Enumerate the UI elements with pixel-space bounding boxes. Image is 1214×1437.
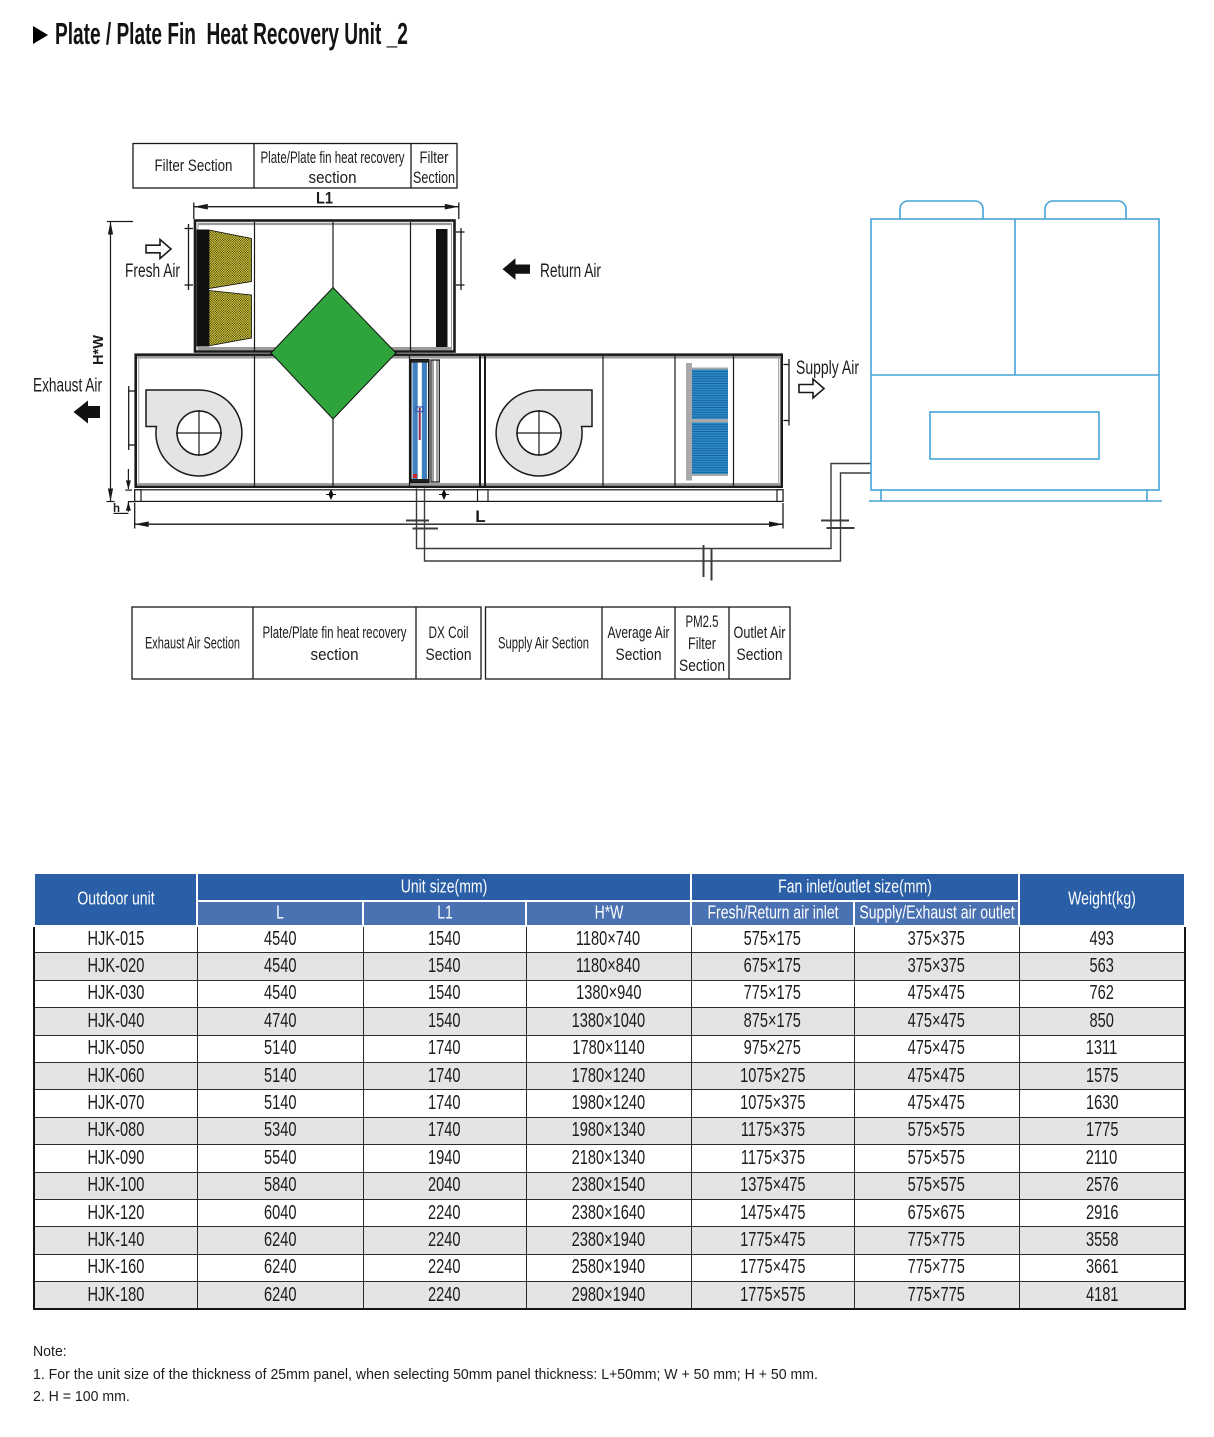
svg-text:PM2.5: PM2.5 xyxy=(686,613,719,631)
svg-text:section: section xyxy=(311,646,359,664)
svg-text:Plate/Plate fin heat recovery: Plate/Plate fin heat recovery xyxy=(261,149,406,167)
svg-text:section: section xyxy=(309,169,357,187)
svg-text:Filter: Filter xyxy=(420,149,449,167)
svg-text:Filter: Filter xyxy=(688,635,716,653)
svg-text:Supply Air Section: Supply Air Section xyxy=(498,635,589,653)
svg-text:L1: L1 xyxy=(316,189,333,208)
svg-text:Return Air: Return Air xyxy=(540,261,601,282)
svg-text:L: L xyxy=(475,507,485,526)
svg-text:Exhaust Air Section: Exhaust Air Section xyxy=(145,635,240,653)
svg-text:Supply Air: Supply Air xyxy=(796,358,859,379)
svg-text:Section: Section xyxy=(679,657,725,675)
svg-text:Fresh Air: Fresh Air xyxy=(125,261,180,282)
svg-text:Outlet Air: Outlet Air xyxy=(734,624,786,642)
svg-text:Section: Section xyxy=(426,646,472,664)
svg-text:Section: Section xyxy=(616,646,662,664)
svg-text:DX Coil: DX Coil xyxy=(429,624,469,642)
svg-text:Exhaust Air: Exhaust Air xyxy=(33,376,102,397)
svg-text:Section: Section xyxy=(737,646,783,664)
svg-text:Plate/Plate fin heat recovery: Plate/Plate fin heat recovery xyxy=(263,624,408,642)
svg-text:Section: Section xyxy=(413,169,455,187)
svg-text:H*W: H*W xyxy=(90,334,107,365)
svg-text:h: h xyxy=(113,503,120,515)
svg-text:Average Air: Average Air xyxy=(608,624,670,642)
svg-text:Filter Section: Filter Section xyxy=(155,157,233,175)
